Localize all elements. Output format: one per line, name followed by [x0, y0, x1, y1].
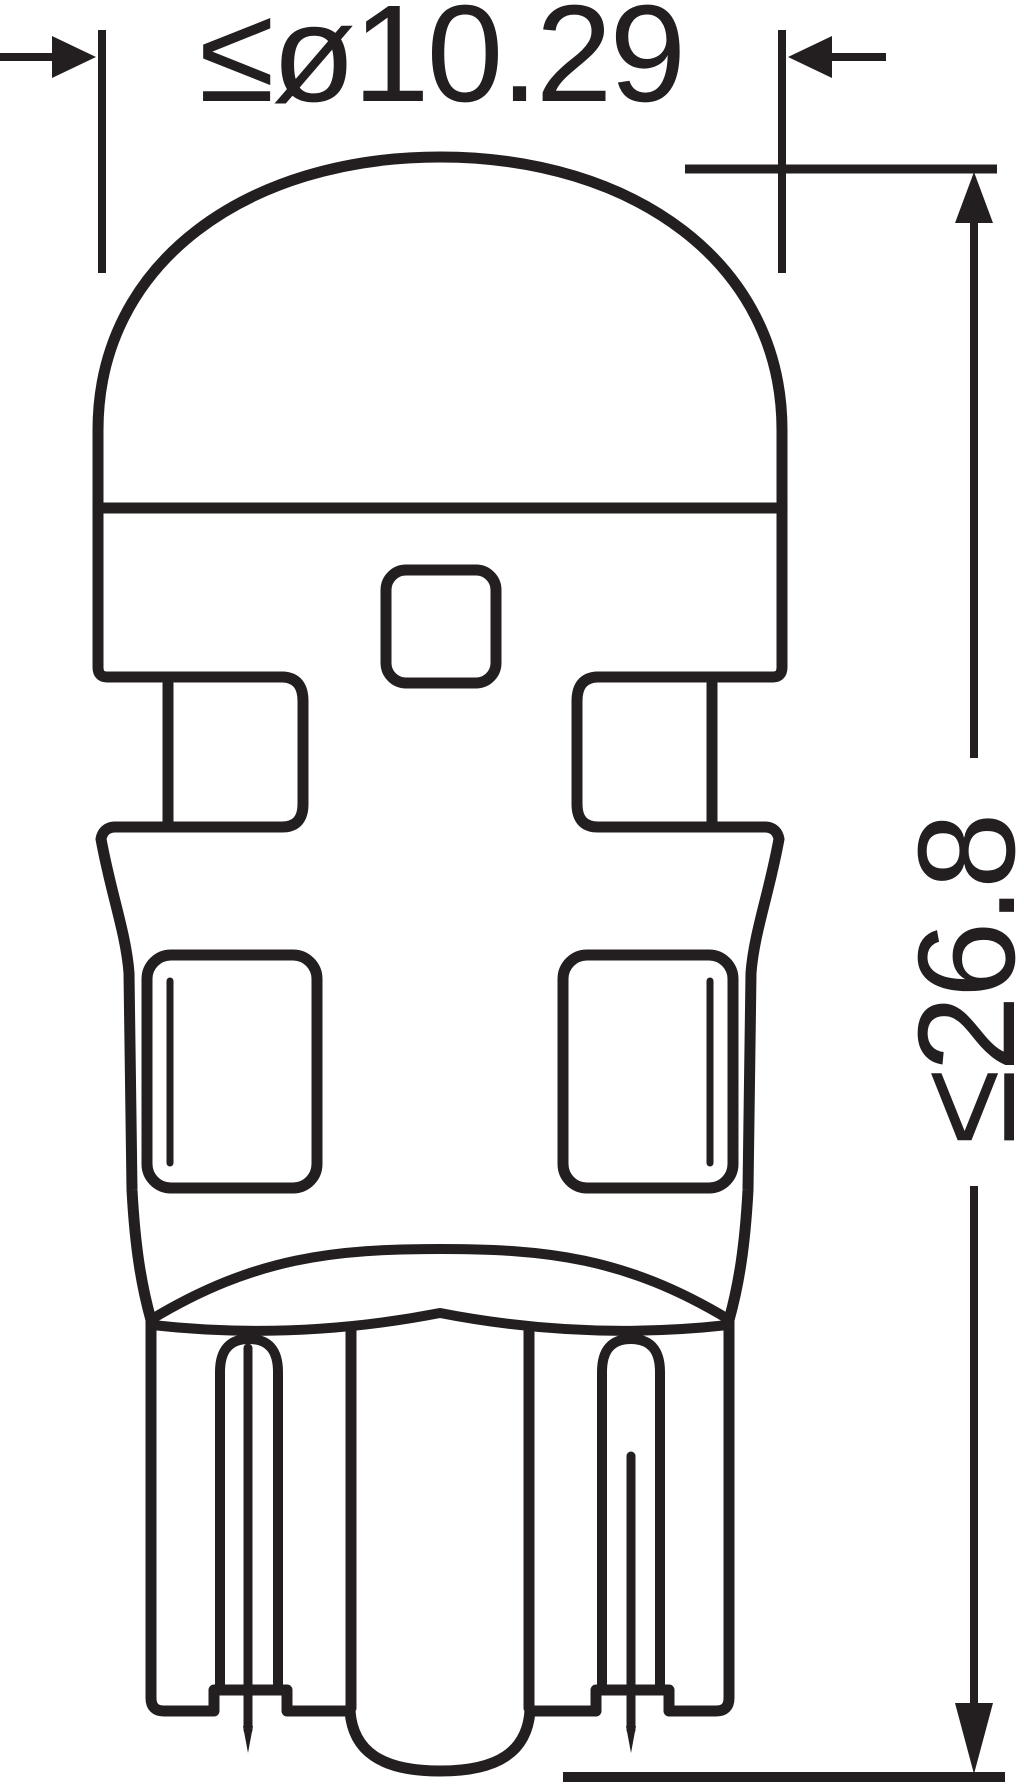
line-work [0, 30, 1005, 1777]
wire-left-tip [243, 1726, 253, 1753]
center-square-hole [386, 570, 496, 683]
width-arrowhead-right-icon [788, 36, 832, 78]
wire-right-tip [626, 1726, 636, 1753]
height-arrowhead-up-icon [955, 172, 993, 223]
bulb-technical-drawing: ≤ø10.29 ≤26.8 [0, 0, 1024, 1784]
wedge-saddle-lower-curve [152, 1313, 728, 1331]
height-arrowhead-down-icon [955, 1703, 993, 1774]
bulb-lower-outline [101, 677, 779, 1771]
height-dimension-label: ≤26.8 [890, 815, 1024, 1144]
bulb-upper-outline [98, 157, 782, 677]
width-arrowhead-left-icon [52, 36, 96, 78]
filled-work: ≤ø10.29 ≤26.8 [52, 0, 1024, 1774]
width-dimension-label: ≤ø10.29 [199, 0, 683, 131]
drawing-canvas: ≤ø10.29 ≤26.8 [0, 0, 1024, 1784]
